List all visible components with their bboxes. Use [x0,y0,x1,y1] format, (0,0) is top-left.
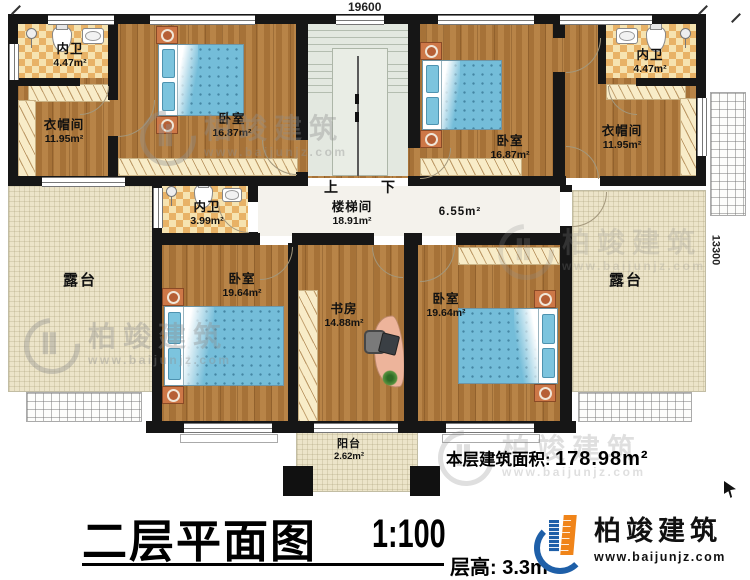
bed-headboard [165,307,184,385]
room-label-bath-top-right: 内卫 4.47m² [633,48,666,76]
wall-segment [296,14,308,140]
bed-mattress [178,45,243,115]
window [336,15,384,25]
room-area: 14.88m² [324,317,363,330]
terrace-door-window [42,177,125,187]
floor-area-line: 本层建筑面积: 178.98m² [446,446,649,471]
dimension-top-width: 19600 [348,0,381,14]
room-name: 阳台 [334,438,364,451]
room-area: 11.95m² [44,133,85,146]
room-area: 4.47m² [633,63,666,76]
room-name: 内卫 [633,48,666,63]
window-sill [442,434,540,443]
room-name: 卧室 [426,292,465,307]
window [9,44,19,80]
room-area: 3.99m² [190,215,223,228]
room-area: 6.55m² [439,206,481,220]
room-label-bedroom-bottom-left: 卧室 19.64m² [222,272,261,300]
room-area: 16.87m² [490,149,529,162]
hallway-floor [258,186,560,236]
window [48,15,114,25]
window [560,15,652,25]
wall-segment [456,233,572,245]
sink-icon [222,188,242,202]
logo-building-bar-blue [549,520,559,552]
dimension-right-height: 13300 [709,235,721,266]
room-name: 卧室 [490,134,529,149]
bed [458,308,558,384]
railing-right-side [710,92,746,216]
company-logo: 柏竣建筑 www.baijunjz.com [534,512,726,570]
stair-down-label: 下 [381,177,395,197]
nightstand [420,130,442,148]
room-area: 19.64m² [426,307,465,320]
room-label-bath-middle: 内卫 3.99m² [190,200,223,228]
room-label-study: 书房 14.88m² [324,302,363,330]
window [446,423,534,433]
room-name: 楼梯间 [332,200,373,215]
pillow [162,82,175,111]
stair-void [332,48,388,176]
bed-headboard [538,309,557,383]
bed-mattress [442,61,501,129]
window [438,15,534,25]
room-label-bedroom-bottom-right: 卧室 19.64m² [426,292,465,320]
nightstand [534,290,556,308]
bed [422,60,502,130]
room-label-bath-top-left: 内卫 4.47m² [53,42,86,70]
room-name: 卧室 [212,112,251,127]
room-label-cloak-right: 衣帽间 11.95m² [602,124,643,152]
drawing-scale: 1:100 [372,512,446,557]
room-label-hallway: 6.55m² [439,206,481,220]
room-name: 露台 [609,272,643,290]
sink-icon [616,28,638,44]
room-name: 衣帽间 [44,118,85,133]
room-name: 衣帽间 [602,124,643,139]
pillow [168,312,181,344]
room-area: 18.91m² [332,215,373,228]
pillow [542,314,555,344]
closet [298,290,318,422]
wall-segment [248,232,258,245]
room-area: 2.62m² [334,451,364,462]
nightstand [156,26,178,44]
wall-segment [288,243,298,423]
balcony-door-window [314,423,398,433]
balcony-column [283,466,313,496]
room-area: 16.87m² [212,127,251,140]
floor-plan: 19600 13300 上 下 [0,0,750,500]
pillow [426,97,439,125]
nightstand [162,288,184,306]
wall-segment [292,233,374,245]
room-label-cloak-left: 衣帽间 11.95m² [44,118,85,146]
wall-segment [404,243,418,423]
stair-direction-mark [355,112,359,122]
shower-icon [26,28,37,39]
closet [458,247,560,265]
company-website: www.baijunjz.com [594,550,726,564]
railing-right [578,392,692,422]
wall-segment [553,72,565,186]
bed [158,44,244,116]
wall-segment [408,176,566,186]
room-area: 4.47m² [53,57,86,70]
stair-direction-mark [355,94,359,104]
room-name: 内卫 [190,200,223,215]
wall-segment [408,14,420,148]
wall-segment [248,185,258,202]
balcony-column [410,466,440,496]
bed-headboard [423,61,442,129]
wall-segment [8,14,18,186]
wall-segment [560,185,572,192]
wall-segment [152,233,260,245]
stair-up-label: 上 [324,177,338,197]
shower-icon [166,186,177,197]
pillow [162,49,175,78]
closet [18,100,36,178]
window [184,423,272,433]
pillow [542,348,555,378]
pillow [426,65,439,93]
nightstand [162,386,184,404]
room-label-balcony: 阳台 2.62m² [334,438,364,463]
room-name: 卧室 [222,272,261,287]
bed-mattress [459,309,538,383]
window [150,15,255,25]
window [697,98,707,156]
room-name: 书房 [324,302,363,317]
plant-icon [382,370,398,386]
floor-height-label: 层高: [450,557,497,579]
stair-treads [308,58,332,94]
room-label-bedroom-top-left: 卧室 16.87m² [212,112,251,140]
wall-segment [600,176,706,186]
room-label-terrace-right: 露台 [609,272,643,290]
wall-segment [560,226,572,423]
nightstand [534,384,556,402]
floor-area-value: 178.98m² [555,448,649,470]
bed-headboard [159,45,178,115]
bed-mattress [184,307,283,385]
room-label-bedroom-top-right: 卧室 16.87m² [490,134,529,162]
room-name: 内卫 [53,42,86,57]
shower-icon [680,28,691,39]
company-name: 柏竣建筑 [594,516,726,547]
nightstand [420,42,442,60]
room-label-terrace-left: 露台 [63,272,97,290]
bed [164,306,284,386]
wall-segment [108,24,118,100]
drawing-title: 二层平面图 [82,505,317,570]
railing-left [26,392,142,422]
wall-segment [598,24,606,84]
pillow [168,348,181,380]
wall-segment [296,172,308,186]
company-logo-icon [534,512,588,570]
room-area: 19.64m² [222,287,261,300]
room-name: 露台 [63,272,97,290]
title-underline [82,563,444,566]
nightstand [156,116,178,134]
dimension-tick [731,13,741,23]
floor-area-label: 本层建筑面积: [446,451,551,469]
room-area: 11.95m² [602,139,643,152]
room-label-stairwell: 楼梯间 18.91m² [332,200,373,228]
window [153,188,163,228]
window-sill [180,434,278,443]
